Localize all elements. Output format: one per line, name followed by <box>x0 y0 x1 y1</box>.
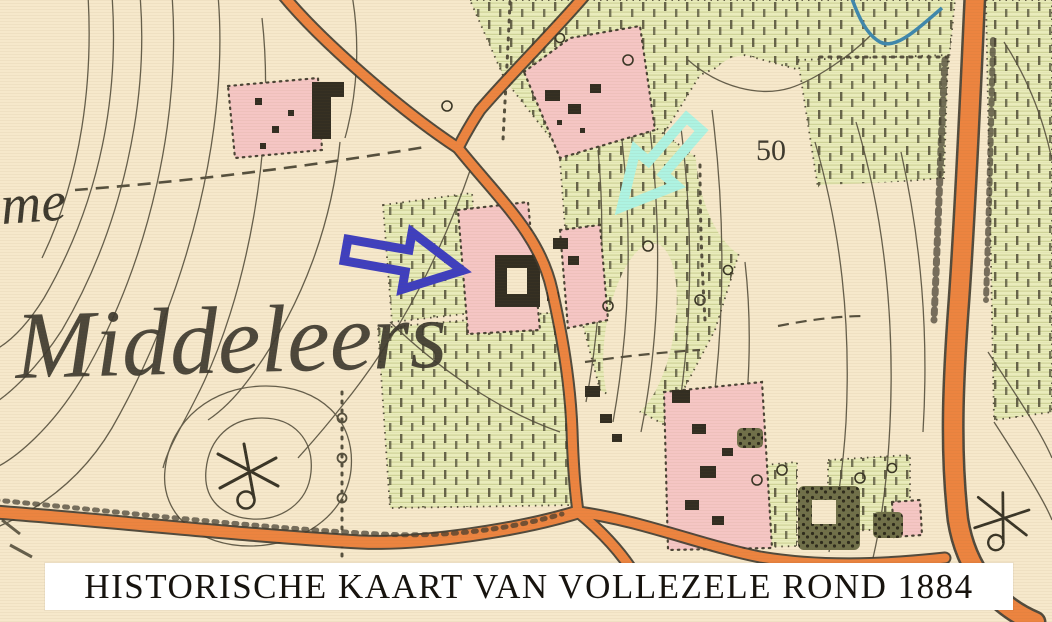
caption-bar: HISTORISCHE KAART VAN VOLLEZELE ROND 188… <box>45 563 1013 610</box>
map-canvas: me Middeleers 50 <box>0 0 1052 622</box>
toponym-partial-label: me <box>0 171 68 237</box>
toponym-main-label: Middeleers <box>12 281 449 399</box>
historical-map: me Middeleers 50 HISTORISCHE KAART VAN V… <box>0 0 1052 622</box>
elevation-mark-label: 50 <box>756 134 786 167</box>
caption-text: HISTORISCHE KAART VAN VOLLEZELE ROND 188… <box>84 567 973 607</box>
